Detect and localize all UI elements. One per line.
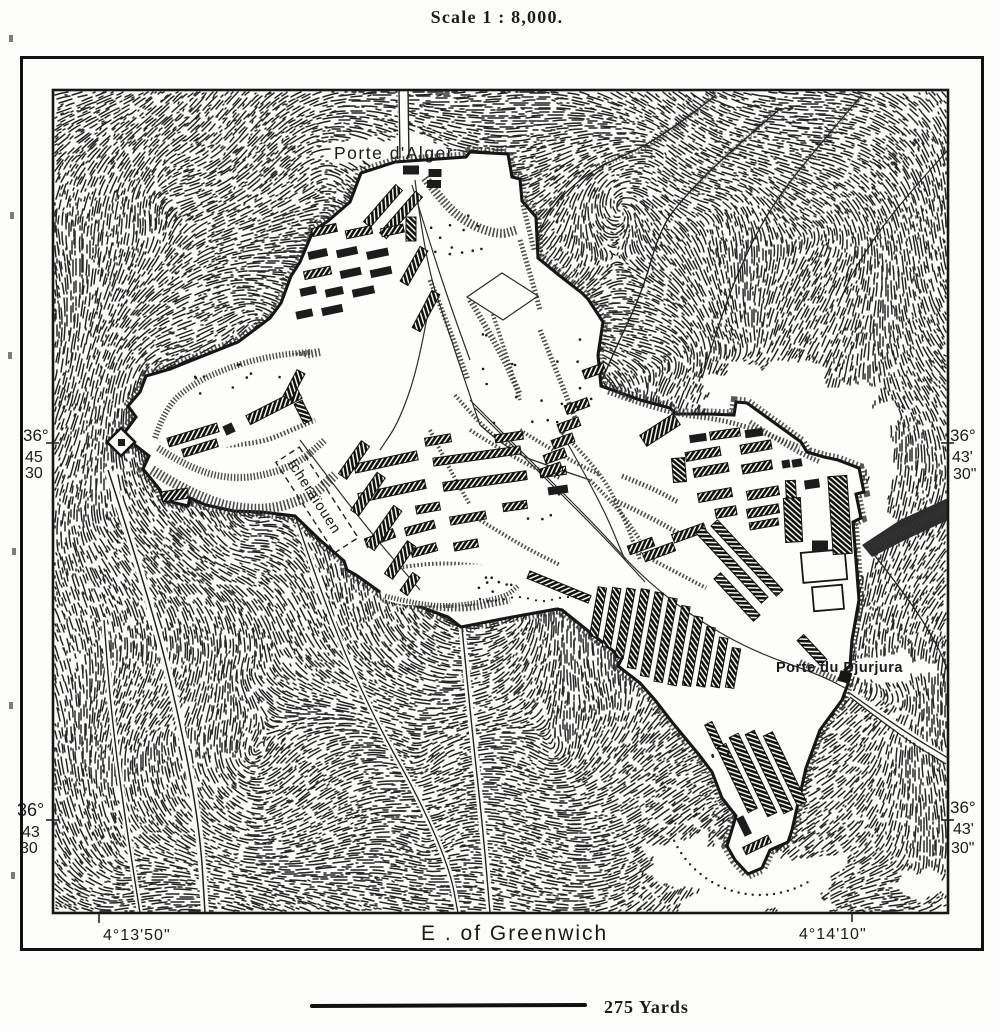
svg-text:4°14'10": 4°14'10"	[799, 926, 867, 943]
svg-text:Porte d'Alger: Porte d'Alger	[334, 143, 454, 163]
svg-text:43: 43	[22, 824, 40, 841]
svg-text:4°13'50": 4°13'50"	[103, 927, 171, 944]
svg-text:43': 43'	[953, 821, 974, 838]
svg-text:45: 45	[25, 449, 43, 466]
svg-text:43': 43'	[952, 449, 973, 466]
svg-text:30": 30"	[951, 840, 974, 857]
svg-text:36°: 36°	[23, 426, 49, 445]
svg-text:Porte du Djurjura: Porte du Djurjura	[776, 660, 903, 676]
svg-text:30: 30	[25, 465, 43, 482]
svg-text:30": 30"	[953, 466, 976, 483]
svg-text:36°: 36°	[950, 798, 976, 817]
svg-text:E . of Greenwich: E . of Greenwich	[421, 922, 608, 945]
svg-text:36°: 36°	[950, 426, 976, 445]
svg-text:Scale 1 : 8,000.: Scale 1 : 8,000.	[431, 7, 564, 27]
svg-text:275 Yards: 275 Yards	[604, 997, 689, 1017]
